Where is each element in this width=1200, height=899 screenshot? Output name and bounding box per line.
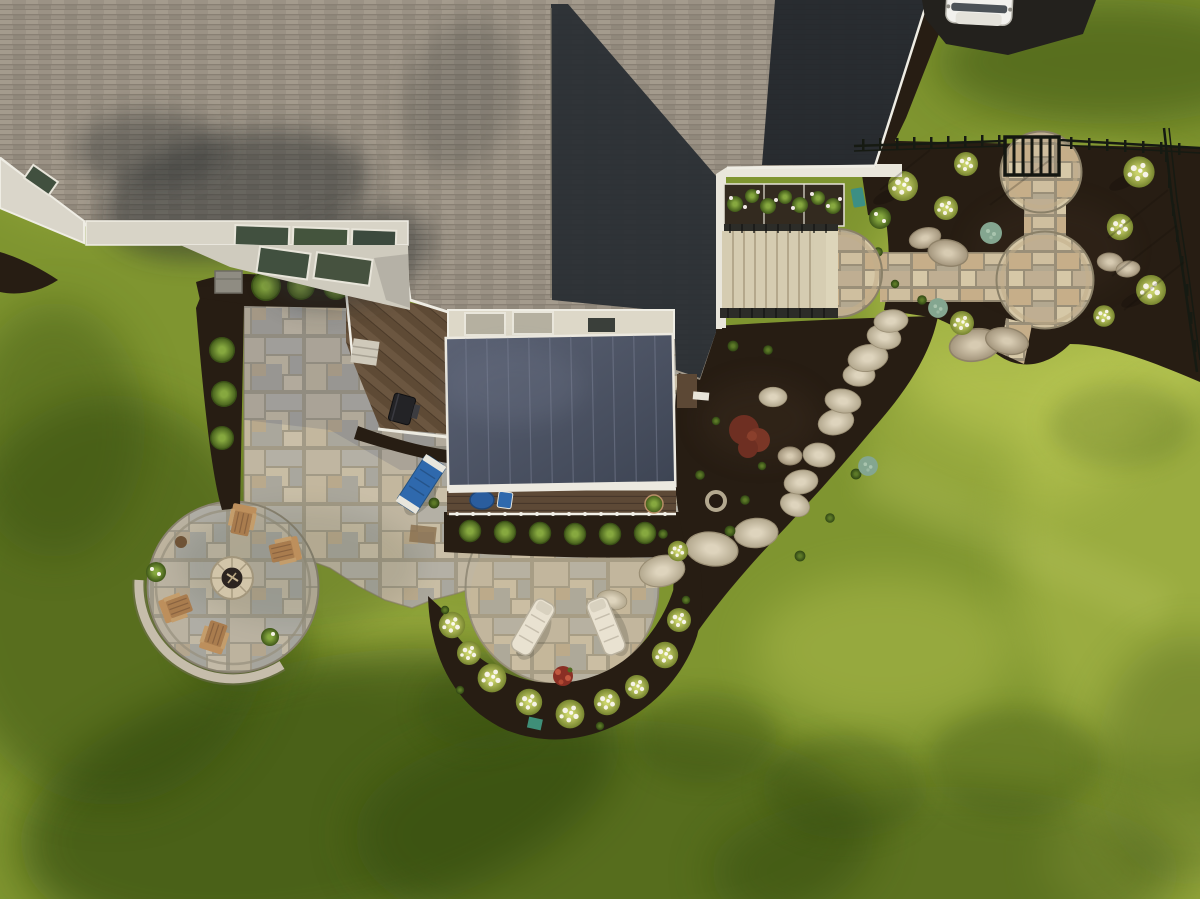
deck-mini-stairs (350, 338, 379, 365)
blue-kiddie-pool (470, 491, 494, 509)
arbor-gate (1005, 137, 1059, 175)
stair-platform (826, 231, 838, 309)
planter-pot (261, 628, 279, 646)
boxwoods-left-column (209, 337, 237, 450)
navy-metal-roof (444, 334, 676, 493)
blue-deck-box (497, 491, 513, 509)
stone-ring-planter (707, 492, 725, 510)
scene-svg (0, 0, 1200, 899)
ridge-vent (588, 318, 615, 332)
white-car (945, 0, 1013, 27)
porch-skylight (465, 313, 505, 335)
utility-box (215, 271, 242, 293)
dark-roof-eave (727, 166, 875, 168)
porch-skylight (513, 312, 553, 334)
planter-pot (146, 562, 166, 582)
side-table (175, 536, 187, 548)
deck-wood-bar (677, 374, 697, 408)
stair-platform (814, 231, 826, 309)
stair-planter-boxes (724, 184, 844, 226)
red-geraniums (553, 666, 573, 686)
stair-rail-lower (720, 308, 838, 318)
dark-shrub (429, 498, 440, 509)
deck-planter-pot (645, 495, 663, 513)
aerial-photo (0, 0, 1200, 899)
fire-pit (211, 557, 253, 599)
court-shrub (869, 207, 891, 229)
stair-run (722, 231, 814, 309)
wall-bracket (693, 391, 710, 400)
accent-paver (409, 525, 437, 545)
